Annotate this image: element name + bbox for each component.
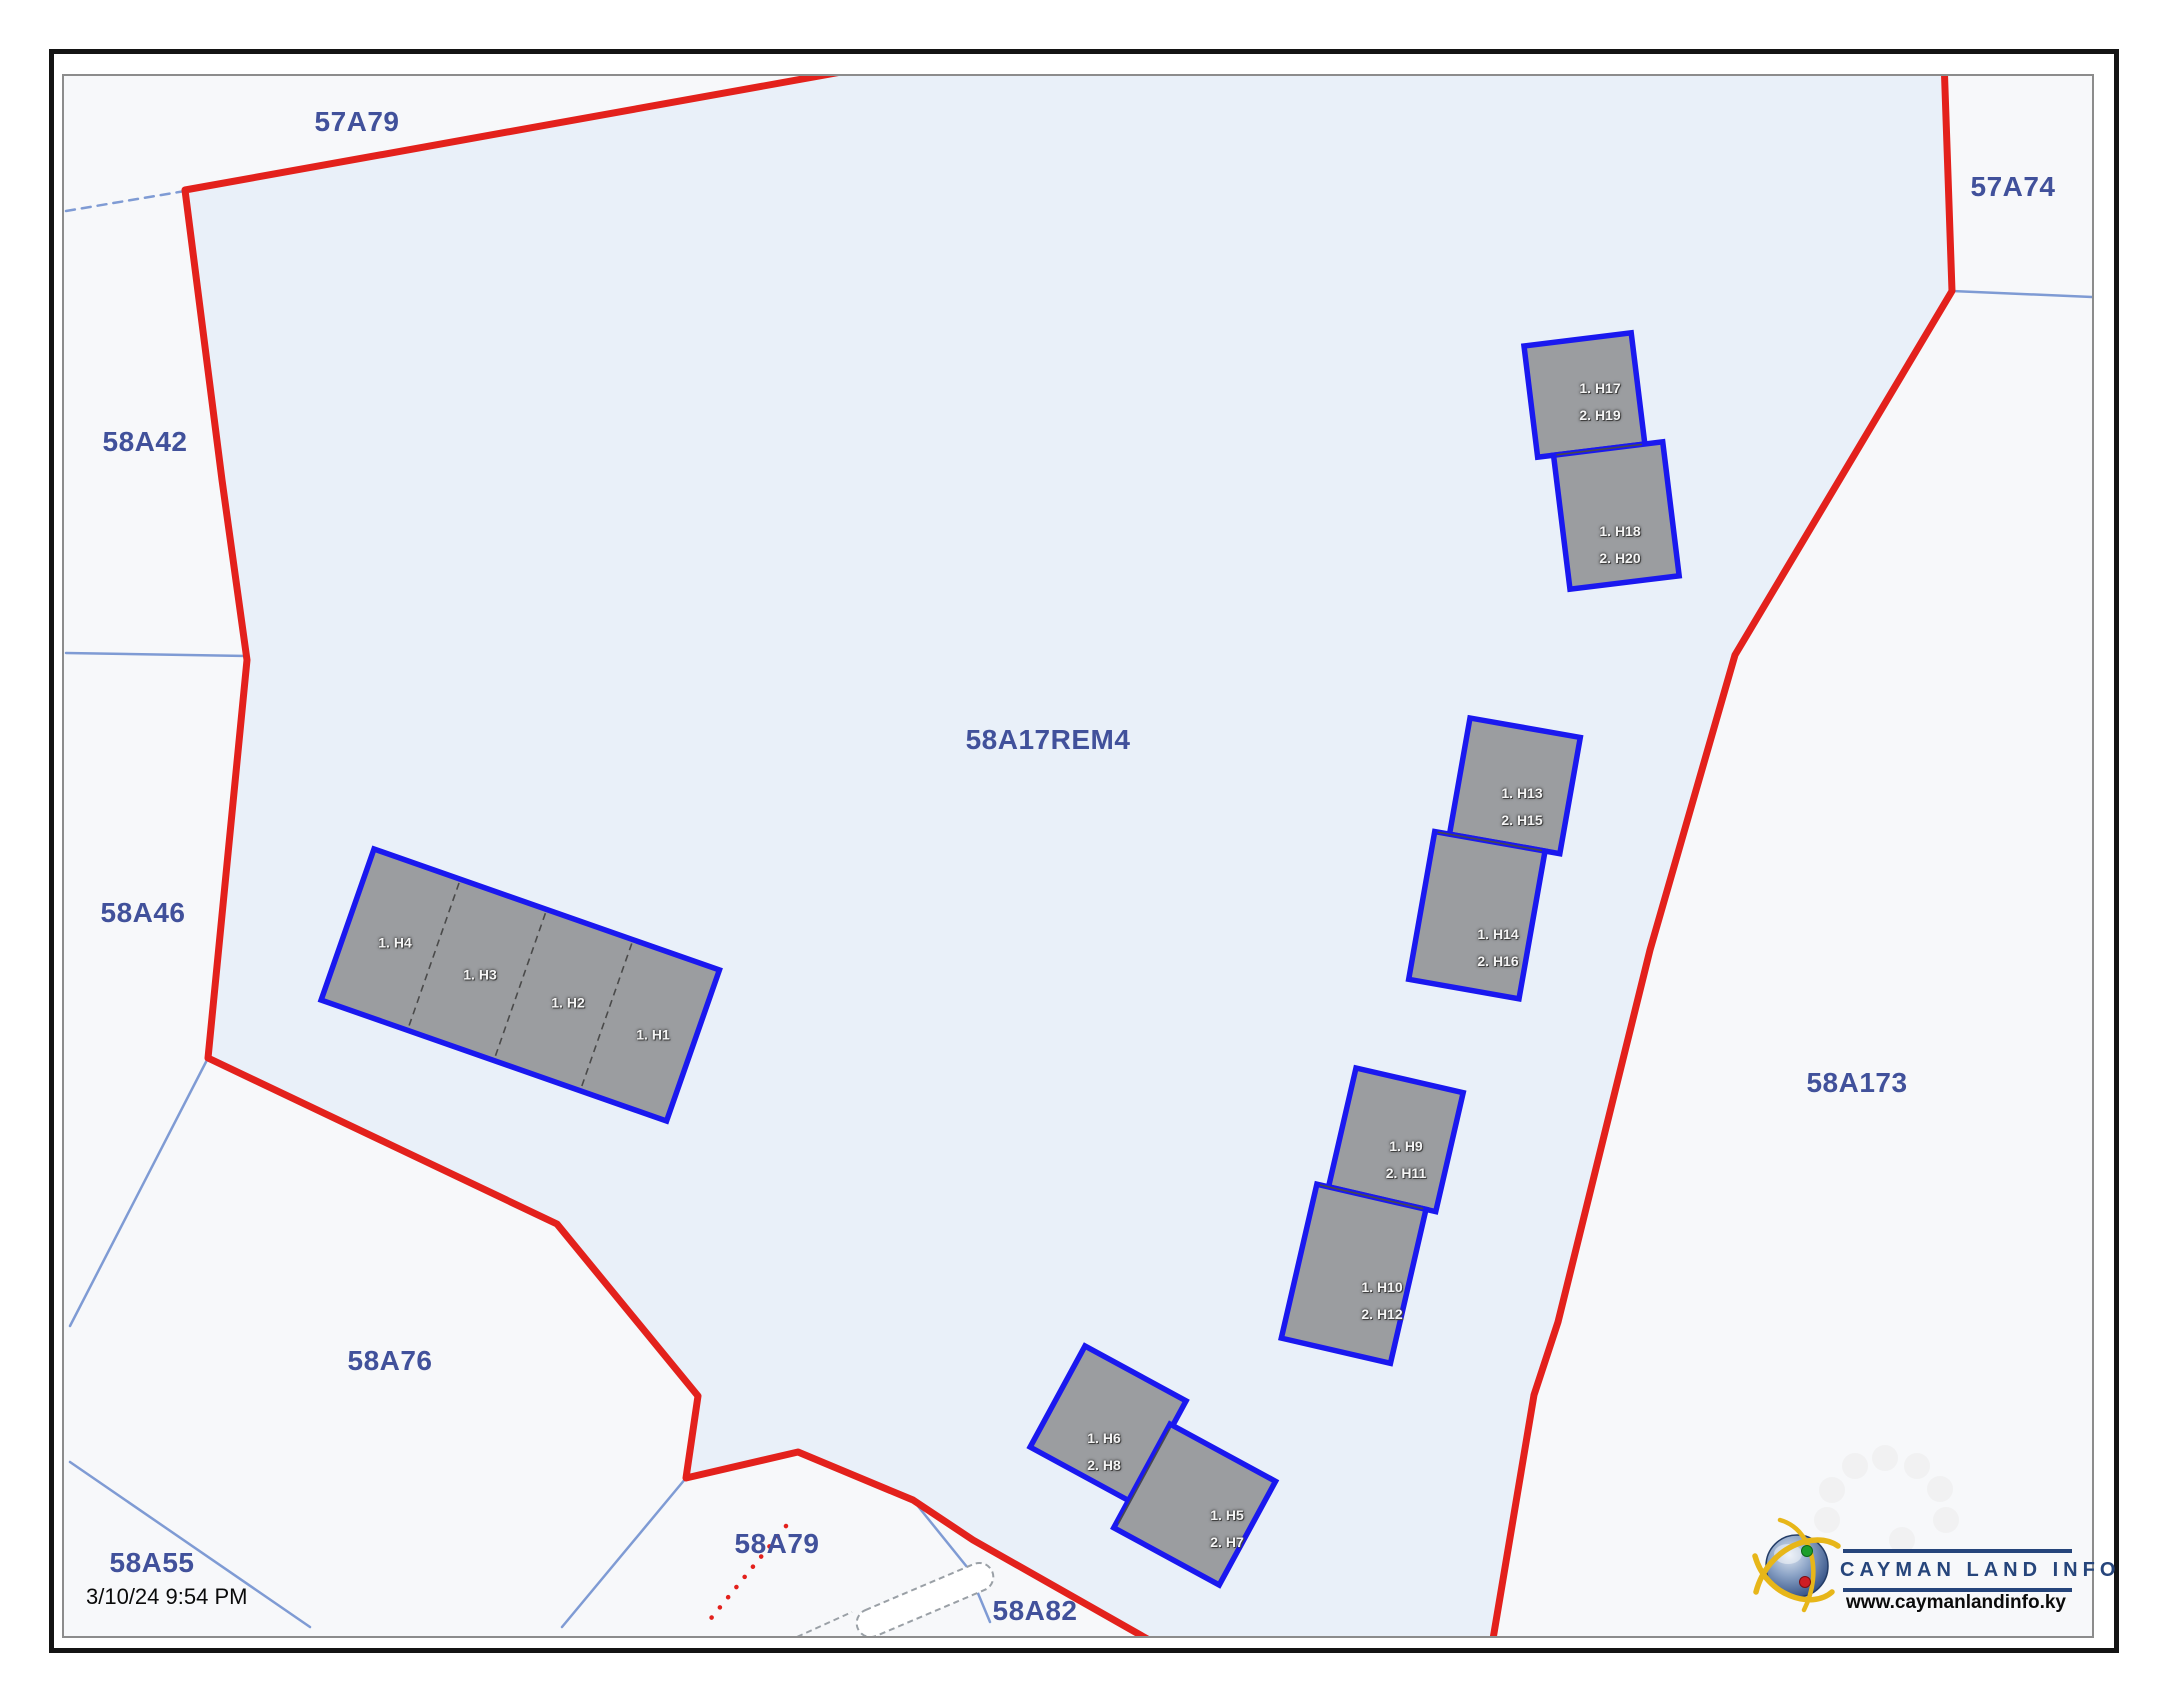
road-shape xyxy=(852,1559,997,1636)
unit-label-h18-h20: 1. H18 2. H20 xyxy=(1599,518,1640,572)
parcel-label-58A173: 58A173 xyxy=(1806,1067,1907,1099)
print-timestamp: 3/10/24 9:54 PM xyxy=(86,1584,247,1610)
parcel-line-south-center xyxy=(562,1478,686,1627)
map-drawing xyxy=(64,76,2092,1636)
parcel-label-57A79: 57A79 xyxy=(314,106,399,138)
parcel-line-west-horizontal xyxy=(66,653,247,656)
parcel-label-58A55: 58A55 xyxy=(109,1547,194,1579)
unit-label-h2: 1. H2 xyxy=(551,990,584,1017)
logo-website-url: www.caymanlandinfo.ky xyxy=(1836,1592,2076,1614)
parcel-line-southwest-upper xyxy=(70,1058,208,1326)
parcel-label-58A76: 58A76 xyxy=(347,1345,432,1377)
unit-label-h17-h19: 1. H17 2. H19 xyxy=(1579,375,1620,429)
cadastral-map-document: 57A79 57A74 58A42 58A46 58A17REM4 58A173… xyxy=(0,0,2168,1700)
unit-label-h14-h16: 1. H14 2. H16 xyxy=(1477,921,1518,975)
parcel-label-58A46: 58A46 xyxy=(100,897,185,929)
unit-label-h9-h11: 1. H9 2. H11 xyxy=(1386,1133,1426,1187)
unit-label-h13-h15: 1. H13 2. H15 xyxy=(1501,780,1542,834)
road-edge-line xyxy=(788,1612,852,1636)
unit-label-h10-h12: 1. H10 2. H12 xyxy=(1361,1274,1402,1328)
cayman-land-info-globe-icon xyxy=(1750,1512,1842,1620)
parcel-label-58A42: 58A42 xyxy=(102,426,187,458)
parcel-label-58A17REM4: 58A17REM4 xyxy=(966,724,1131,756)
unit-label-h5-h7: 1. H5 2. H7 xyxy=(1210,1502,1243,1556)
unit-label-h6-h8: 1. H6 2. H8 xyxy=(1087,1425,1120,1479)
map-canvas xyxy=(64,76,2092,1636)
parcel-line-northeast-horizontal xyxy=(1952,291,2092,297)
unit-label-h1: 1. H1 xyxy=(636,1022,669,1049)
parcel-line-northwest-dashed xyxy=(66,191,185,211)
unit-label-h3: 1. H3 xyxy=(463,962,496,989)
parcel-label-58A79: 58A79 xyxy=(734,1528,819,1560)
unit-label-h4: 1. H4 xyxy=(378,930,411,957)
parcel-label-57A74: 57A74 xyxy=(1970,171,2055,203)
logo-company-name: CAYMAN LAND INFO xyxy=(1840,1559,2072,1582)
parcel-label-58A82: 58A82 xyxy=(992,1595,1077,1627)
logo-top-rule xyxy=(1843,1549,2072,1553)
